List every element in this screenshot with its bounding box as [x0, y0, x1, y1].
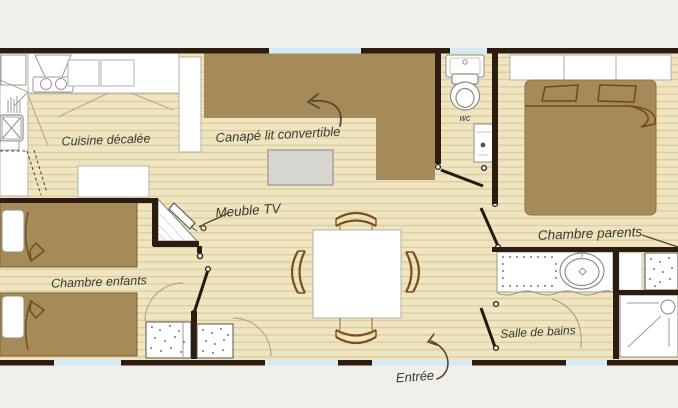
svg-text:wc: wc	[460, 113, 471, 123]
svg-text:Entrée: Entrée	[395, 368, 434, 386]
